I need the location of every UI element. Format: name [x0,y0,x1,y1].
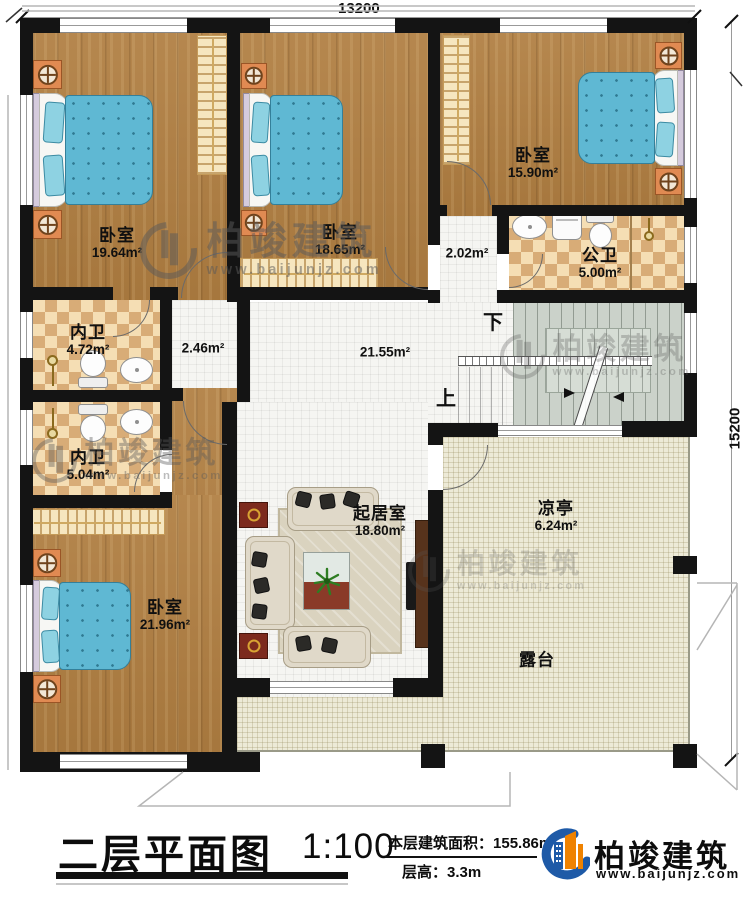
brand-url: www.baijunjz.com [596,866,740,881]
floor-area-label: 本层建筑面积： [388,835,493,852]
title-underline [56,872,348,879]
floor-height-label: 层高： [402,864,447,881]
floor-height-value: 3.3m [447,864,481,881]
plan-scale: 1:100 [302,827,395,867]
brand-logo-icon [538,824,590,886]
floor-area-text: 本层建筑面积：155.86m² [388,832,557,853]
titleblock-divider [385,856,537,858]
floor-height-text: 层高：3.3m [402,861,481,882]
title-underline-thin [56,883,348,885]
eaves-and-ticks [0,0,750,830]
floor-plan-page: 卧室 19.64m² 卧室 18.65m² 卧室 15.90m² 公卫 5.00… [0,0,750,897]
